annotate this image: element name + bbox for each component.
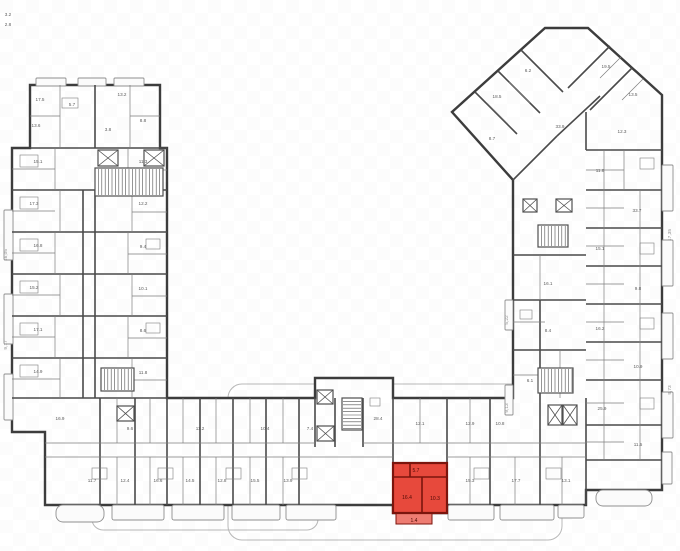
watermark-tile: [611, 195, 624, 208]
watermark-tile: [39, 403, 52, 416]
watermark-tile: [572, 520, 585, 533]
watermark-tile: [676, 26, 680, 39]
watermark-tile: [611, 455, 624, 468]
watermark-tile: [78, 338, 91, 351]
watermark-tile: [455, 403, 468, 416]
watermark-tile: [390, 26, 403, 39]
watermark-tile: [208, 546, 221, 551]
watermark-tile: [364, 52, 377, 65]
watermark-tile: [507, 13, 520, 26]
watermark-tile: [572, 52, 585, 65]
watermark-tile: [234, 442, 247, 455]
watermark-tile: [598, 0, 611, 13]
watermark-tile: [351, 533, 364, 546]
watermark-tile: [364, 494, 377, 507]
watermark-tile: [507, 65, 520, 78]
watermark-tile: [13, 39, 26, 52]
watermark-tile: [390, 442, 403, 455]
watermark-tile: [481, 481, 494, 494]
watermark-tile: [676, 546, 680, 551]
watermark-tile: [325, 65, 338, 78]
area-label: 16.8: [34, 243, 43, 248]
watermark-tile: [442, 78, 455, 91]
watermark-tile: [26, 494, 39, 507]
watermark-tile: [429, 117, 442, 130]
watermark-tile: [0, 156, 13, 169]
watermark-tile: [273, 39, 286, 52]
watermark-tile: [299, 91, 312, 104]
watermark-tile: [494, 442, 507, 455]
selected-apartment-outline[interactable]: [393, 463, 447, 513]
watermark-tile: [650, 286, 663, 299]
watermark-tile: [468, 182, 481, 195]
watermark-tile: [390, 260, 403, 273]
watermark-tile: [585, 39, 598, 52]
stair-box: [538, 225, 568, 247]
balcony: [662, 313, 673, 359]
watermark-tile: [559, 351, 572, 364]
watermark-tile: [273, 169, 286, 182]
watermark-tile: [325, 325, 338, 338]
watermark-tile: [325, 247, 338, 260]
watermark-tile: [91, 65, 104, 78]
watermark-tile: [611, 351, 624, 364]
watermark-tile: [39, 507, 52, 520]
watermark-tile: [299, 13, 312, 26]
watermark-tile: [195, 195, 208, 208]
watermark-tile: [429, 143, 442, 156]
watermark-tile: [520, 546, 533, 551]
watermark-tile: [403, 273, 416, 286]
watermark-tile: [494, 338, 507, 351]
watermark-tile: [624, 78, 637, 91]
area-label: 10.4: [261, 426, 270, 431]
watermark-tile: [520, 52, 533, 65]
watermark-tile: [208, 234, 221, 247]
area-label: 2.8: [5, 22, 12, 27]
watermark-tile: [559, 91, 572, 104]
watermark-tile: [468, 0, 481, 13]
watermark-tile: [650, 312, 663, 325]
watermark-tile: [403, 429, 416, 442]
watermark-tile: [442, 234, 455, 247]
watermark-tile: [338, 182, 351, 195]
watermark-tile: [208, 286, 221, 299]
watermark-tile: [546, 26, 559, 39]
elevator-core: [98, 150, 118, 166]
watermark-tile: [507, 143, 520, 156]
watermark-tile: [208, 26, 221, 39]
area-label: 16.9: [56, 416, 65, 421]
watermark-tile: [637, 299, 650, 312]
area-label: 11.7: [88, 478, 97, 483]
watermark-tile: [546, 286, 559, 299]
watermark-tile: [598, 26, 611, 39]
watermark-tile: [520, 442, 533, 455]
watermark-tile: [637, 351, 650, 364]
watermark-tile: [403, 299, 416, 312]
watermark-tile: [91, 533, 104, 546]
elevator-core: [117, 406, 134, 421]
watermark-tile: [494, 182, 507, 195]
watermark-tile: [169, 429, 182, 442]
watermark-tile: [533, 65, 546, 78]
watermark-tile: [442, 520, 455, 533]
watermark-tile: [299, 195, 312, 208]
watermark-tile: [338, 208, 351, 221]
stair-core: [101, 368, 134, 391]
watermark-tile: [312, 338, 325, 351]
watermark-tile: [182, 390, 195, 403]
watermark-tile: [26, 520, 39, 533]
watermark-tile: [416, 130, 429, 143]
watermark-tile: [52, 546, 65, 551]
watermark-tile: [650, 104, 663, 117]
watermark-tile: [104, 520, 117, 533]
area-label: 6.2: [525, 68, 532, 73]
watermark-tile: [156, 338, 169, 351]
watermark-tile: [0, 130, 13, 143]
watermark-tile: [260, 104, 273, 117]
watermark-tile: [624, 546, 637, 551]
watermark-tile: [221, 91, 234, 104]
watermark-tile: [520, 78, 533, 91]
watermark-tile: [455, 65, 468, 78]
watermark-tile: [650, 364, 663, 377]
watermark-tile: [364, 260, 377, 273]
watermark-tile: [39, 39, 52, 52]
watermark-tile: [377, 429, 390, 442]
watermark-tile: [572, 364, 585, 377]
watermark-tile: [117, 13, 130, 26]
watermark-tile: [260, 52, 273, 65]
watermark-tile: [234, 52, 247, 65]
watermark-tile: [403, 533, 416, 546]
watermark-tile: [546, 338, 559, 351]
watermark-tile: [26, 260, 39, 273]
balcony: [114, 78, 144, 86]
watermark-tile: [13, 299, 26, 312]
watermark-tile: [195, 117, 208, 130]
area-label: 3.8: [105, 127, 112, 132]
watermark-tile: [598, 416, 611, 429]
watermark-tile: [611, 429, 624, 442]
watermark-tile: [533, 117, 546, 130]
watermark-tile: [182, 78, 195, 91]
watermark-tile: [104, 312, 117, 325]
watermark-tile: [624, 312, 637, 325]
watermark-tile: [416, 104, 429, 117]
watermark-tile: [598, 130, 611, 143]
watermark-tile: [468, 234, 481, 247]
watermark-tile: [572, 234, 585, 247]
area-label: 6.1: [527, 378, 534, 383]
watermark-tile: [663, 39, 676, 52]
watermark-tile: [299, 117, 312, 130]
watermark-tile: [169, 273, 182, 286]
watermark-tile: [390, 156, 403, 169]
watermark-tile: [338, 52, 351, 65]
watermark-tile: [325, 481, 338, 494]
watermark-tile: [351, 377, 364, 390]
watermark-tile: [520, 286, 533, 299]
watermark-tile: [286, 0, 299, 13]
watermark-tile: [338, 234, 351, 247]
watermark-tile: [39, 429, 52, 442]
watermark-tile: [442, 390, 455, 403]
watermark-tile: [273, 299, 286, 312]
watermark-tile: [637, 429, 650, 442]
watermark-tile: [273, 143, 286, 156]
watermark-tile: [26, 52, 39, 65]
area-label: 5.7: [69, 102, 76, 107]
watermark-tile: [429, 91, 442, 104]
watermark-tile: [260, 286, 273, 299]
stair-core: [538, 225, 568, 247]
watermark-tile: [676, 234, 680, 247]
watermark-tile: [260, 364, 273, 377]
balcony: [500, 505, 554, 520]
watermark-tile: [468, 78, 481, 91]
watermark-tile: [221, 65, 234, 78]
watermark-tile: [91, 403, 104, 416]
watermark-tile: [130, 52, 143, 65]
watermark-tile: [442, 416, 455, 429]
watermark-tile: [507, 221, 520, 234]
watermark-tile: [429, 299, 442, 312]
watermark-tile: [299, 143, 312, 156]
area-label: 19.5: [602, 64, 611, 69]
watermark-tile: [585, 429, 598, 442]
watermark-tile: [325, 39, 338, 52]
area-label: 13.2: [118, 92, 127, 97]
watermark-tile: [182, 234, 195, 247]
stair-core: [538, 368, 573, 393]
watermark-tile: [455, 247, 468, 260]
watermark-tile: [52, 390, 65, 403]
balcony: [36, 78, 66, 86]
watermark-tile: [221, 273, 234, 286]
watermark-tile: [208, 260, 221, 273]
watermark-tile: [390, 312, 403, 325]
watermark-tile: [468, 52, 481, 65]
watermark-tile: [546, 104, 559, 117]
watermark-tile: [247, 325, 260, 338]
watermark-tile: [247, 13, 260, 26]
watermark-tile: [234, 130, 247, 143]
watermark-tile: [624, 520, 637, 533]
watermark-tile: [299, 377, 312, 390]
area-label: 15.1: [596, 246, 605, 251]
watermark-tile: [52, 52, 65, 65]
watermark-tile: [481, 221, 494, 234]
watermark-tile: [507, 429, 520, 442]
watermark-tile: [494, 364, 507, 377]
watermark-tile: [351, 91, 364, 104]
watermark-tile: [312, 468, 325, 481]
watermark-tile: [364, 78, 377, 91]
watermark-tile: [195, 481, 208, 494]
watermark-tile: [208, 52, 221, 65]
watermark-tile: [559, 299, 572, 312]
watermark-tile: [182, 312, 195, 325]
watermark-tile: [221, 377, 234, 390]
watermark-tile: [26, 338, 39, 351]
watermark-tile: [455, 325, 468, 338]
watermark-tile: [234, 390, 247, 403]
watermark-tile: [676, 520, 680, 533]
balcony: [448, 505, 494, 520]
watermark-tile: [13, 507, 26, 520]
watermark-tile: [65, 195, 78, 208]
watermark-tile: [273, 403, 286, 416]
balcony: [662, 165, 673, 211]
area-label: 25.9: [598, 406, 607, 411]
watermark-tile: [663, 533, 676, 546]
watermark-tile: [494, 260, 507, 273]
watermark-tile: [104, 286, 117, 299]
watermark-tile: [468, 364, 481, 377]
watermark-tile: [338, 0, 351, 13]
watermark-tile: [169, 377, 182, 390]
watermark-tile: [663, 299, 676, 312]
watermark-tile: [39, 247, 52, 260]
watermark-tile: [286, 52, 299, 65]
watermark-tile: [39, 481, 52, 494]
watermark-tile: [377, 91, 390, 104]
watermark-tile: [650, 234, 663, 247]
watermark-tile: [52, 442, 65, 455]
watermark-tile: [429, 169, 442, 182]
watermark-tile: [286, 416, 299, 429]
watermark-tile: [234, 208, 247, 221]
watermark-tile: [221, 325, 234, 338]
watermark-tile: [156, 0, 169, 13]
watermark-tile: [546, 78, 559, 91]
watermark-tile: [468, 546, 481, 551]
watermark-tile: [130, 442, 143, 455]
watermark-tile: [637, 13, 650, 26]
watermark-tile: [520, 468, 533, 481]
watermark-tile: [637, 65, 650, 78]
watermark-tile: [507, 195, 520, 208]
watermark-tile: [442, 208, 455, 221]
watermark-tile: [65, 143, 78, 156]
watermark-tile: [273, 325, 286, 338]
dimension-label: 17,35: [667, 229, 673, 241]
area-label: 12.2: [139, 201, 148, 206]
watermark-tile: [247, 299, 260, 312]
watermark-tile: [442, 104, 455, 117]
watermark-tile: [130, 26, 143, 39]
watermark-tile: [468, 208, 481, 221]
watermark-tile: [260, 520, 273, 533]
watermark-tile: [78, 312, 91, 325]
watermark-tile: [481, 351, 494, 364]
area-label: 9.8: [635, 286, 642, 291]
watermark-tile: [637, 91, 650, 104]
watermark-tile: [195, 273, 208, 286]
watermark-tile: [520, 26, 533, 39]
watermark-tile: [247, 143, 260, 156]
watermark-tile: [52, 364, 65, 377]
watermark-tile: [299, 481, 312, 494]
watermark-tile: [559, 39, 572, 52]
watermark-tile: [520, 182, 533, 195]
watermark-tile: [455, 13, 468, 26]
watermark-tile: [377, 169, 390, 182]
watermark-tile: [598, 520, 611, 533]
watermark-tile: [52, 182, 65, 195]
watermark-tile: [156, 26, 169, 39]
watermark-tile: [26, 208, 39, 221]
watermark-tile: [273, 351, 286, 364]
watermark-tile: [637, 247, 650, 260]
watermark-tile: [260, 26, 273, 39]
watermark-tile: [481, 117, 494, 130]
watermark-tile: [377, 117, 390, 130]
watermark-tile: [0, 494, 13, 507]
watermark-tile: [468, 338, 481, 351]
watermark-tile: [247, 221, 260, 234]
watermark-tile: [78, 260, 91, 273]
watermark-tile: [169, 247, 182, 260]
watermark-tile: [130, 260, 143, 273]
watermark-tile: [676, 494, 680, 507]
watermark-tile: [182, 520, 195, 533]
watermark-tile: [39, 533, 52, 546]
watermark-tile: [169, 117, 182, 130]
watermark-tile: [247, 429, 260, 442]
watermark-tile: [91, 273, 104, 286]
watermark-tile: [585, 403, 598, 416]
watermark-tile: [78, 52, 91, 65]
watermark-tile: [52, 468, 65, 481]
watermark-tile: [156, 52, 169, 65]
watermark-tile: [455, 429, 468, 442]
watermark-tile: [442, 260, 455, 273]
watermark-tile: [364, 234, 377, 247]
watermark-tile: [156, 78, 169, 91]
watermark-tile: [104, 546, 117, 551]
watermark-tile: [286, 130, 299, 143]
watermark-tile: [221, 429, 234, 442]
watermark-tile: [260, 260, 273, 273]
watermark-tile: [182, 156, 195, 169]
watermark-tile: [481, 65, 494, 78]
watermark-tile: [442, 364, 455, 377]
watermark-tile: [598, 338, 611, 351]
watermark-tile: [611, 247, 624, 260]
watermark-tile: [247, 91, 260, 104]
watermark-tile: [195, 377, 208, 390]
watermark-tile: [104, 234, 117, 247]
watermark-tile: [13, 273, 26, 286]
watermark-tile: [208, 208, 221, 221]
watermark-tile: [299, 533, 312, 546]
watermark-tile: [572, 546, 585, 551]
watermark-tile: [546, 156, 559, 169]
watermark-tile: [468, 442, 481, 455]
watermark-tile: [416, 390, 429, 403]
watermark-tile: [650, 130, 663, 143]
watermark-tile: [637, 169, 650, 182]
watermark-tile: [611, 65, 624, 78]
area-label: 14.5: [186, 478, 195, 483]
watermark-tile: [442, 156, 455, 169]
watermark-tile: [650, 338, 663, 351]
watermark-tile: [0, 468, 13, 481]
